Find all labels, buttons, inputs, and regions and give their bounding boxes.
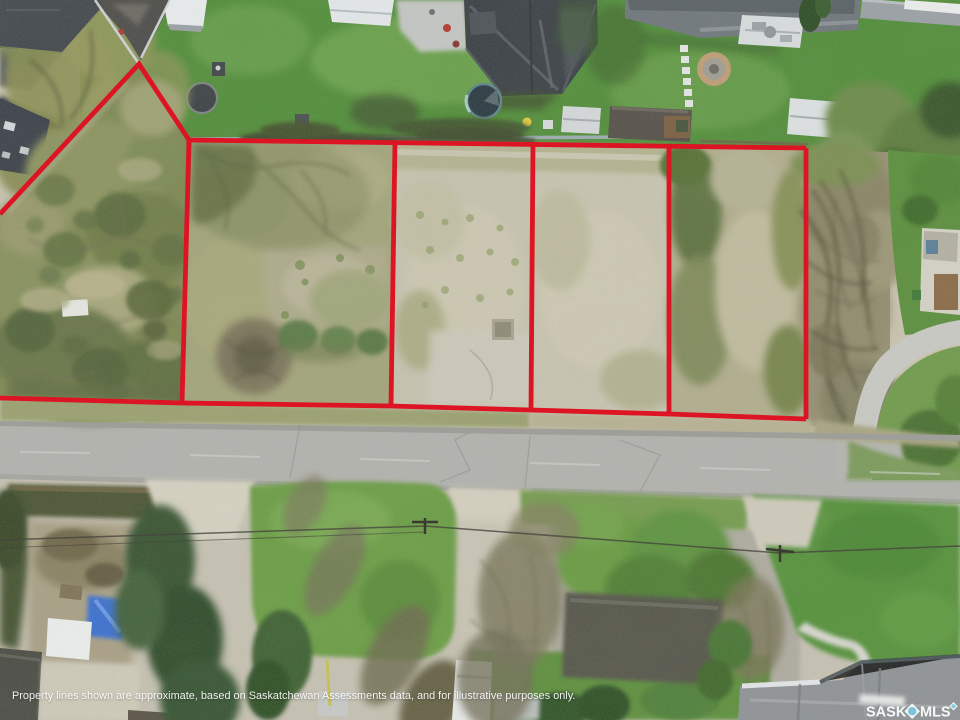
svg-text:MLS: MLS <box>920 705 951 720</box>
svg-text:SASK: SASK <box>866 705 907 720</box>
